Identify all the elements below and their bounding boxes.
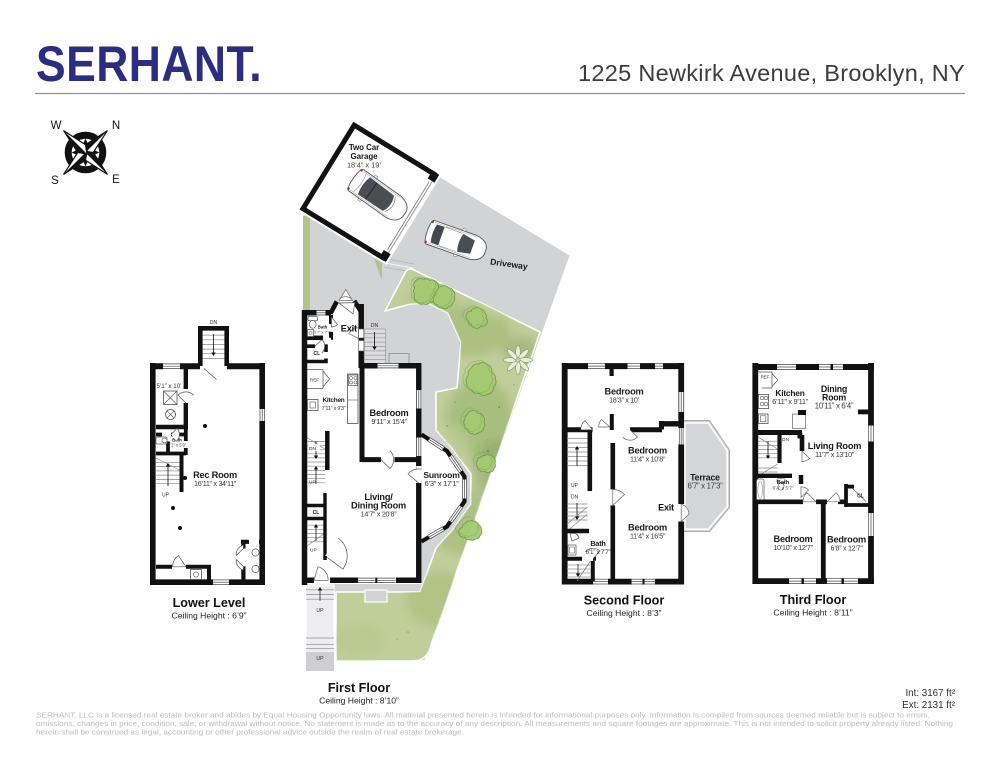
svg-text:Ceiling Height : 8’11”: Ceiling Height : 8’11” bbox=[773, 608, 852, 618]
svg-text:Two Car: Two Car bbox=[349, 143, 379, 152]
svg-text:DN: DN bbox=[309, 446, 316, 452]
svg-text:7’11” x 9’3”: 7’11” x 9’3” bbox=[322, 406, 346, 412]
svg-text:3’7” x 7’7”: 3’7” x 7’7” bbox=[314, 330, 332, 335]
svg-text:DN: DN bbox=[571, 495, 579, 501]
svg-text:Exit: Exit bbox=[341, 324, 357, 334]
svg-text:6’1” x 7’7”: 6’1” x 7’7” bbox=[586, 549, 611, 556]
svg-text:herein shall be construed as l: herein shall be construed as legal, acco… bbox=[36, 728, 464, 737]
svg-text:REF: REF bbox=[310, 378, 319, 383]
svg-text:UP: UP bbox=[571, 483, 579, 489]
svg-text:Ceiling Height : 6’9”: Ceiling Height : 6’9” bbox=[172, 611, 247, 621]
svg-text:11’4” x 16’5”: 11’4” x 16’5” bbox=[630, 532, 666, 541]
svg-text:First Floor: First Floor bbox=[328, 681, 390, 695]
svg-text:E: E bbox=[112, 174, 120, 186]
svg-text:Bath: Bath bbox=[590, 539, 605, 548]
svg-text:CL: CL bbox=[857, 494, 864, 500]
svg-text:5’1” x 10’: 5’1” x 10’ bbox=[156, 383, 181, 390]
svg-text:6’11” x 9’11”: 6’11” x 9’11” bbox=[772, 397, 809, 406]
svg-text:DN: DN bbox=[371, 323, 379, 329]
svg-text:Ceiling Height : 8’3”: Ceiling Height : 8’3” bbox=[587, 608, 662, 618]
svg-text:Lower Level: Lower Level bbox=[173, 596, 246, 610]
svg-text:6’4” x 5’7”: 6’4” x 5’7” bbox=[772, 486, 793, 492]
svg-text:18’3” x 10’: 18’3” x 10’ bbox=[609, 396, 640, 405]
svg-text:Second Floor: Second Floor bbox=[584, 594, 665, 608]
svg-text:6’7” x 17’3”: 6’7” x 17’3” bbox=[688, 482, 724, 491]
svg-text:Exit: Exit bbox=[658, 503, 674, 513]
svg-text:DN: DN bbox=[210, 320, 218, 326]
svg-text:CL: CL bbox=[313, 510, 320, 516]
svg-text:UP: UP bbox=[316, 656, 324, 662]
svg-text:6’3” x 17’1”: 6’3” x 17’1” bbox=[425, 479, 460, 488]
svg-text:S: S bbox=[51, 175, 59, 187]
svg-text:CL: CL bbox=[313, 351, 320, 357]
svg-text:W: W bbox=[51, 120, 62, 132]
svg-text:UP: UP bbox=[316, 608, 324, 614]
svg-text:11’4” x 10’8”: 11’4” x 10’8” bbox=[630, 455, 666, 464]
svg-text:11’7” x 13’10”: 11’7” x 13’10” bbox=[815, 450, 855, 459]
svg-text:REF: REF bbox=[761, 375, 770, 380]
svg-text:SERHANT.: SERHANT. bbox=[36, 36, 262, 92]
svg-text:Ceiling Height : 8’10”: Ceiling Height : 8’10” bbox=[319, 696, 399, 706]
svg-text:1225 Newkirk Avenue, Brooklyn,: 1225 Newkirk Avenue, Brooklyn, NY bbox=[578, 60, 965, 86]
svg-text:10’11” x 6’4”: 10’11” x 6’4” bbox=[815, 402, 854, 411]
svg-text:N: N bbox=[112, 120, 120, 132]
svg-text:Ext: 2131 ft²: Ext: 2131 ft² bbox=[902, 700, 956, 711]
svg-text:4’1” x 5’9”: 4’1” x 5’9” bbox=[168, 443, 187, 448]
svg-text:6’8” x 12’7”: 6’8” x 12’7” bbox=[831, 544, 864, 553]
svg-text:UP: UP bbox=[310, 548, 317, 554]
svg-text:Bath: Bath bbox=[777, 480, 790, 486]
svg-text:18’4” x 19’: 18’4” x 19’ bbox=[347, 161, 381, 170]
svg-text:UP: UP bbox=[162, 493, 170, 499]
svg-text:10’10” x 12’7”: 10’10” x 12’7” bbox=[773, 543, 813, 552]
svg-text:9’11” x 15’4”: 9’11” x 15’4” bbox=[371, 417, 407, 426]
svg-text:UP: UP bbox=[309, 480, 316, 486]
svg-text:16’11” x 34’11”: 16’11” x 34’11” bbox=[194, 479, 237, 488]
svg-text:Int: 3167 ft²: Int: 3167 ft² bbox=[905, 688, 955, 699]
svg-text:DN: DN bbox=[782, 437, 789, 443]
svg-text:Third Floor: Third Floor bbox=[780, 593, 847, 607]
svg-text:14’7” x 20’8”: 14’7” x 20’8” bbox=[361, 510, 398, 519]
svg-text:Kitchen: Kitchen bbox=[322, 397, 344, 404]
